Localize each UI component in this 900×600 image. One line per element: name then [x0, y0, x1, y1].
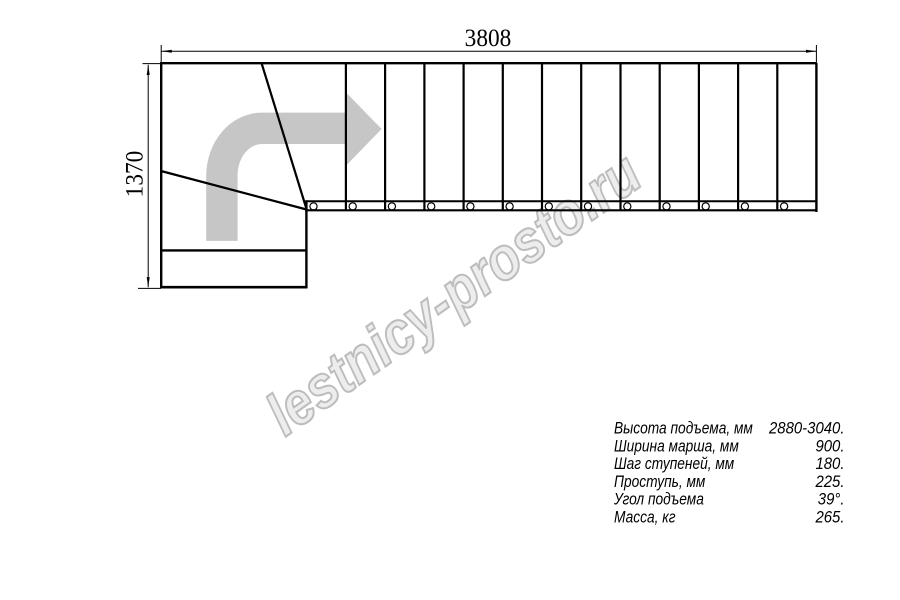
svg-text:180.: 180.	[815, 455, 844, 473]
svg-text:2880-3040.: 2880-3040.	[768, 420, 844, 438]
svg-text:265.: 265.	[815, 509, 845, 527]
svg-text:Ширина марша, мм: Ширина марша, мм	[614, 437, 739, 455]
svg-text:Угол подъема: Угол подъема	[613, 491, 704, 509]
svg-text:Высота подъема, мм: Высота подъема, мм	[614, 419, 753, 437]
svg-text:39°.: 39°.	[818, 491, 845, 509]
svg-text:900.: 900.	[815, 438, 844, 456]
svg-text:Проступь, мм: Проступь, мм	[614, 473, 706, 491]
svg-text:Масса, кг: Масса, кг	[614, 508, 676, 526]
svg-text:3808: 3808	[465, 24, 512, 52]
svg-text:1370: 1370	[121, 151, 149, 198]
svg-text:Шаг ступеней, мм: Шаг ступеней, мм	[614, 455, 735, 473]
svg-text:225.: 225.	[815, 473, 845, 491]
